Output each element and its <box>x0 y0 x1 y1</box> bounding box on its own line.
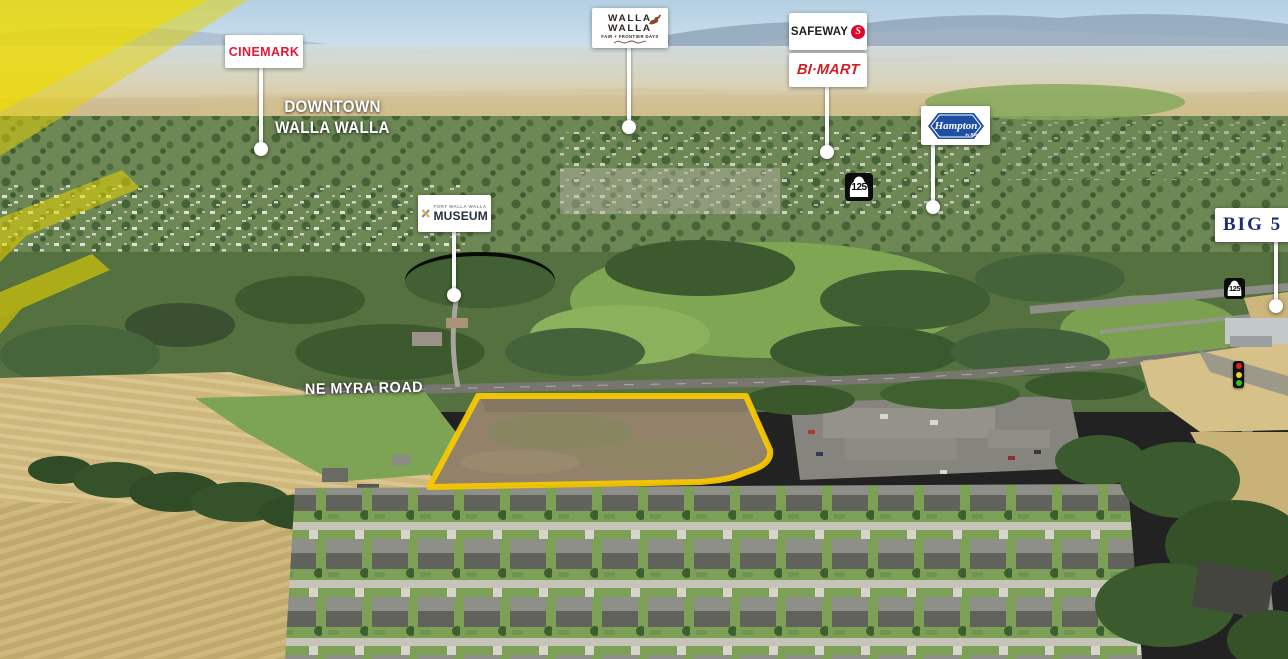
pin-stem <box>259 67 263 149</box>
pin-dot <box>254 142 268 156</box>
traffic-light-icon <box>1233 361 1244 388</box>
marker-big5: BIG 5 <box>1215 208 1288 242</box>
script-tagline-graphic <box>613 39 647 45</box>
route-number: 125 <box>1229 284 1240 293</box>
traffic-green-light <box>1236 380 1242 386</box>
downtown-label-line2: WALLA WALLA <box>275 118 390 139</box>
downtown-label-line1: DOWNTOWN <box>275 97 390 118</box>
marker-bimart: BI·MART <box>789 53 867 87</box>
museum-x-logo <box>421 204 430 223</box>
safeway-s-logo: S <box>851 25 865 39</box>
marker-cinemark: CINEMARK <box>225 35 303 68</box>
pin-stem <box>825 87 829 151</box>
hampton-byline: by Hilton <box>966 132 981 137</box>
pin-stem <box>1274 241 1278 305</box>
pin-dot <box>622 120 636 134</box>
pin-dot <box>820 145 834 159</box>
big5-logo: BIG 5 <box>1223 214 1282 236</box>
pin-dot <box>926 200 940 214</box>
pin-dot <box>1269 299 1283 313</box>
route-shield-125-icon: 125 <box>845 173 873 201</box>
safeway-logo: SAFEWAY <box>791 26 848 38</box>
museum-logo-text: MUSEUM <box>433 210 488 222</box>
ne-myra-road-label: NE MYRA ROAD <box>305 379 423 400</box>
aerial-photo-background <box>0 0 1288 659</box>
traffic-yellow-light <box>1236 372 1242 378</box>
bimart-logo: BI·MART <box>796 62 859 78</box>
fair-logo-line2: WALLA <box>608 24 652 34</box>
cinemark-logo: CINEMARK <box>229 45 300 59</box>
marker-hampton: Hampton by Hilton <box>921 106 990 145</box>
pin-dot <box>447 288 461 302</box>
marker-fort-walla-walla-museum: FORT WALLA WALLA MUSEUM <box>418 195 491 232</box>
route-shield-125-icon: 125 <box>1224 278 1245 299</box>
marker-safeway: SAFEWAY S <box>789 13 867 50</box>
available-parcel <box>429 396 770 487</box>
route-number: 125 <box>851 182 866 193</box>
aerial-map: DOWNTOWN WALLA WALLA NE MYRA ROAD CINEMA… <box>0 0 1288 659</box>
pin-stem <box>931 144 935 206</box>
pin-stem <box>452 231 456 294</box>
traffic-red-light <box>1236 363 1242 369</box>
commercial-building-site <box>745 372 1145 485</box>
marker-walla-walla-fair: WALLA WALLA FAIR + FRONTIER DAYS <box>592 8 668 48</box>
downtown-walla-walla-label: DOWNTOWN WALLA WALLA <box>275 97 390 138</box>
pin-stem <box>627 47 631 125</box>
hampton-logo-text: Hampton <box>933 120 977 132</box>
